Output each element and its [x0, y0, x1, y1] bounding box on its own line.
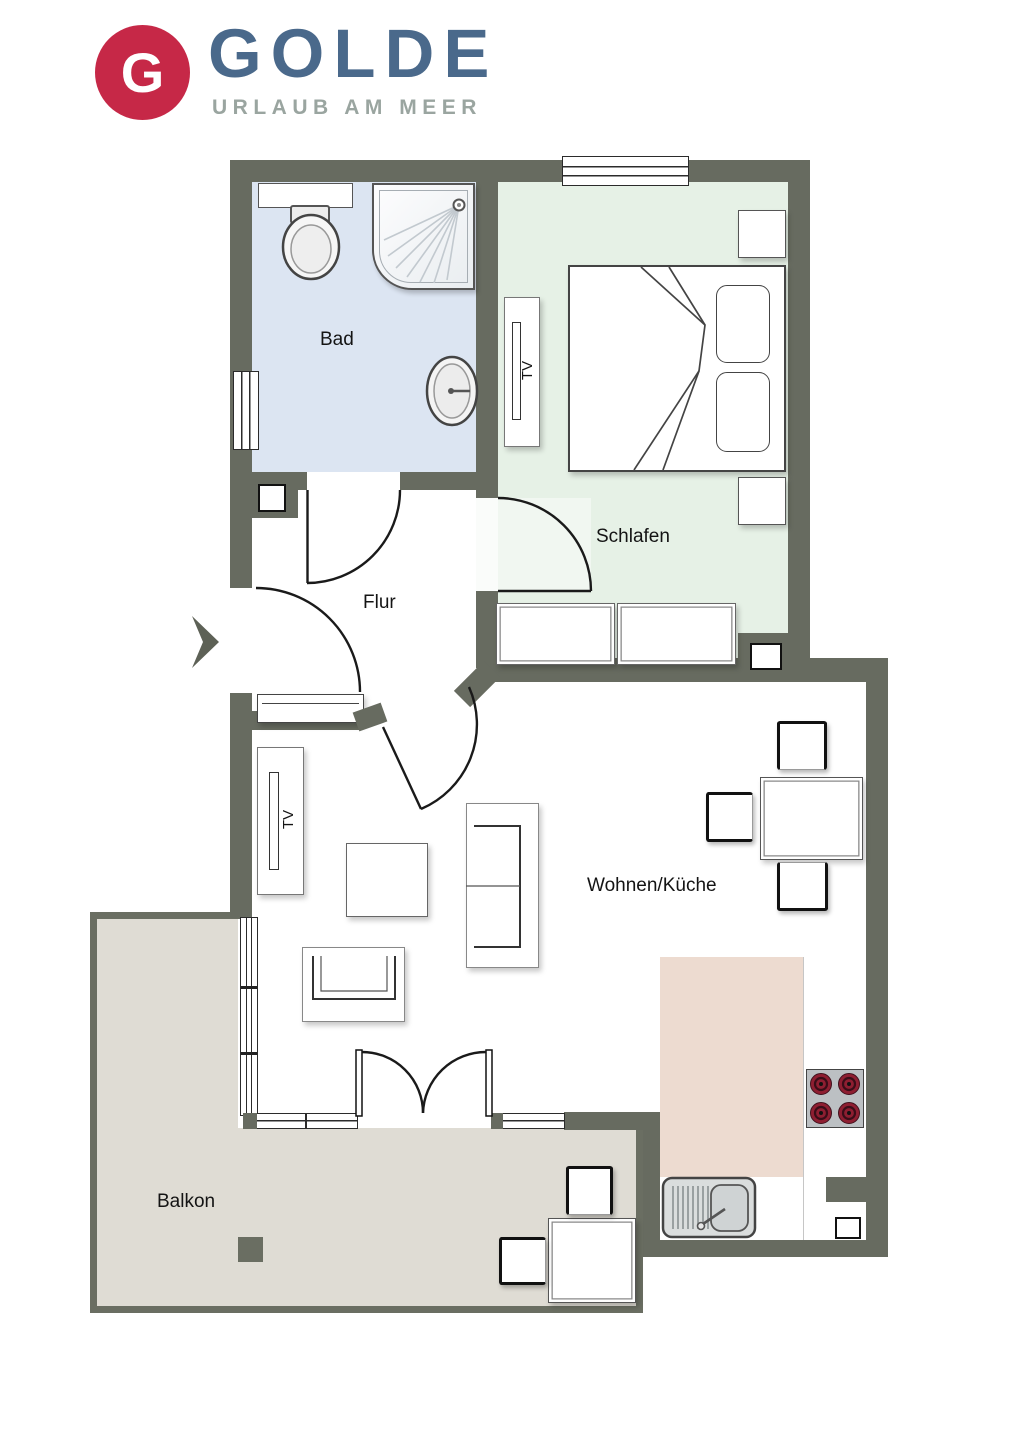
shaft-box-kueche	[835, 1217, 861, 1239]
shaft-box-flur	[258, 484, 286, 512]
wardrobe-panel-2	[617, 603, 736, 665]
wohnen-kueche-label: Wohnen/Küche	[587, 875, 717, 897]
bad-window	[234, 372, 258, 449]
wall-sink-chunk	[826, 1177, 866, 1202]
balkon-sill-1	[253, 1114, 305, 1128]
window-divider-1	[241, 986, 257, 989]
dining-chair-west	[706, 792, 753, 842]
wohnen-west-window	[241, 918, 257, 1115]
schlafen-tv-label: TV	[519, 361, 536, 380]
wardrobe-panel-1	[496, 603, 615, 665]
floorplan-page: G GOLDE URLAUB AM MEER	[0, 0, 1018, 1440]
shower-icon	[372, 183, 475, 290]
balkon-sill-2	[307, 1114, 357, 1128]
shower-tray	[379, 190, 468, 283]
flur-sideboard-line	[262, 703, 359, 704]
french-door-jamb-left	[243, 1113, 257, 1129]
shaft-box-schlafen	[750, 643, 782, 670]
wall-top	[240, 160, 810, 182]
logo-tagline-text: URLAUB AM MEER	[212, 96, 482, 120]
kitchen-sink-basin	[711, 1185, 748, 1231]
wall-flur-schlafen-stub	[476, 591, 498, 668]
wall-left	[230, 160, 252, 918]
wohnen-tv-label: TV	[280, 810, 297, 829]
schlafen-door-swing-area	[498, 498, 591, 591]
balkon-parapet-left	[90, 912, 97, 1313]
french-door-left-leaf	[356, 1050, 362, 1116]
window-divider-2	[241, 1052, 257, 1055]
logo-brand-text: GOLDE	[208, 14, 498, 93]
bad-label: Bad	[320, 329, 354, 351]
french-door-right-arc	[423, 1052, 486, 1113]
stove-icon	[806, 1069, 864, 1128]
balkon-floor-left	[90, 912, 238, 1313]
bad-cabinet	[258, 183, 353, 208]
wohnen-door-leaf	[383, 727, 421, 809]
entrance-door-arc	[256, 588, 360, 692]
bad-door-arc	[307, 490, 400, 583]
balkon-chair-north	[566, 1166, 613, 1215]
kitchen-faucet-base	[698, 1223, 705, 1230]
kitchen-faucet-arm	[703, 1209, 725, 1224]
entrance-arrow-icon	[192, 616, 219, 668]
schlafen-door-opening	[476, 498, 498, 591]
balkon-chair-west	[499, 1237, 546, 1285]
wall-right-lower	[866, 658, 888, 1257]
nightstand-1	[738, 210, 786, 258]
wohnen-door-arc	[421, 687, 477, 809]
armchair-icon	[302, 947, 405, 1022]
balkon-label: Balkon	[157, 1191, 215, 1213]
wall-balkon-kueche	[643, 1128, 660, 1257]
wall-right-upper	[788, 160, 810, 658]
wall-bad-schlafen	[476, 182, 498, 498]
flur-label: Flur	[363, 592, 396, 614]
french-door-jamb-right	[491, 1113, 503, 1129]
dining-chair-south	[777, 862, 828, 911]
balkon-parapet-right	[636, 1128, 643, 1313]
dining-chair-north	[777, 721, 827, 770]
coffee-table	[346, 843, 428, 917]
sofa-icon	[466, 803, 539, 968]
balkon-sill-3	[503, 1114, 564, 1128]
kueche-floor	[660, 957, 803, 1177]
balkon-parapet-top	[90, 912, 252, 919]
kitchen-sink-icon	[663, 1178, 755, 1237]
french-door-right-leaf	[486, 1050, 492, 1116]
schlafen-label: Schlafen	[596, 526, 670, 548]
schlafen-window	[563, 157, 688, 185]
logo-monogram-icon: G	[95, 25, 190, 120]
wall-kueche-bottom	[643, 1240, 888, 1257]
balkon-planter	[238, 1237, 263, 1262]
french-door-left-arc	[362, 1052, 423, 1113]
wohnen-tv-screen	[269, 772, 279, 870]
pillow-2	[716, 372, 770, 452]
wohnen-door-stub-right	[462, 669, 492, 699]
dining-table	[760, 777, 863, 860]
entrance-opening	[228, 588, 254, 693]
nightstand-2	[738, 477, 786, 525]
kitchen-sink-drainboard	[673, 1186, 708, 1229]
balkon-table	[548, 1218, 636, 1303]
pillow-1	[716, 285, 770, 363]
balkon-parapet-bottom	[90, 1306, 643, 1313]
flur-sideboard	[257, 694, 364, 723]
